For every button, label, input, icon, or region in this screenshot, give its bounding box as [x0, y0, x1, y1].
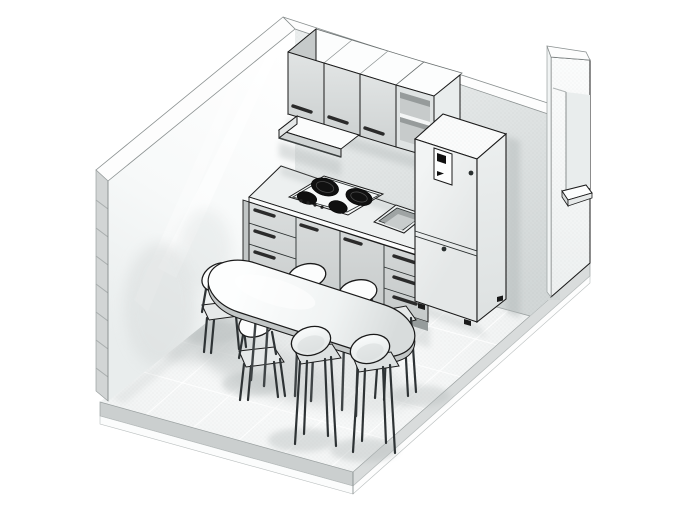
freezer-dispenser-panel[interactable] — [434, 148, 452, 185]
refrigerator[interactable] — [415, 114, 520, 326]
fridge-handle-upper[interactable] — [469, 171, 474, 176]
right-wall-front-strip — [547, 46, 551, 297]
3d-viewport[interactable] — [0, 0, 675, 506]
fridge-back-gap-shadow — [506, 136, 520, 318]
upper-cabinet-door-2[interactable] — [324, 63, 360, 136]
fridge-side-right — [477, 134, 506, 322]
base-cabinet-left-side — [243, 200, 249, 268]
render-canvas — [0, 0, 675, 506]
fridge-handle-lower[interactable] — [442, 247, 447, 252]
upper-cabinet-door-1[interactable] — [288, 52, 324, 125]
upper-cabinet-door-3[interactable] — [360, 74, 396, 147]
window-recess — [566, 92, 590, 196]
right-wall[interactable] — [547, 46, 592, 297]
